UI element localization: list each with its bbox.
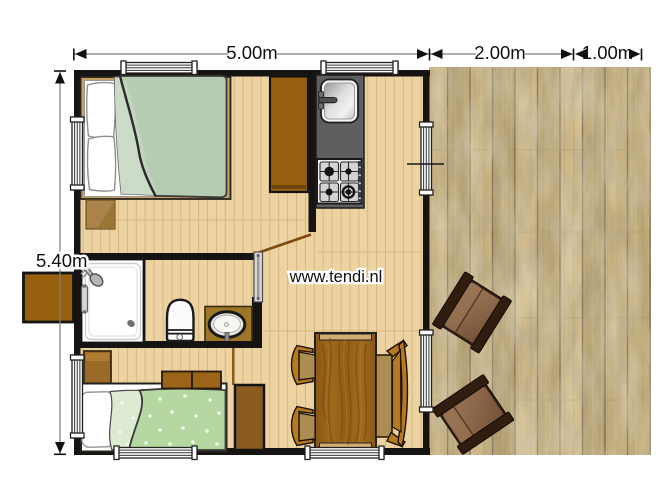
- svg-text:www.tendi.nl: www.tendi.nl: [289, 268, 383, 286]
- svg-text:5.00m: 5.00m: [226, 42, 277, 63]
- svg-text:2.00m: 2.00m: [474, 42, 525, 63]
- svg-text:5.40m: 5.40m: [36, 250, 87, 271]
- svg-text:1.00m: 1.00m: [582, 42, 633, 63]
